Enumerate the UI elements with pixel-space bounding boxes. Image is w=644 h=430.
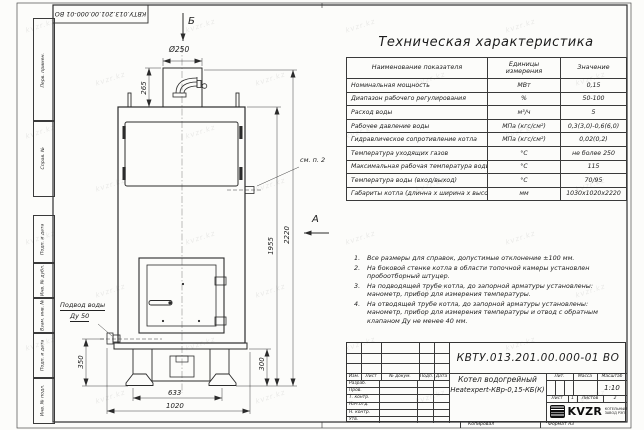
spec-cell: % [488,92,561,106]
note-number: 4. [352,300,367,325]
spec-row: Гидравлическое сопротивление котлаМПа (к… [347,133,627,147]
note-text: На отводящей трубе котла, до запорной ар… [367,300,624,325]
margin-box-inv-dubl: Инв. № дубл. [33,262,55,299]
view-b-label: Б [188,17,195,27]
spec-cell: Номинальная мощность [347,79,488,93]
dim-633: 633 [168,390,181,397]
row-nach-otd: Нач.отд. [349,403,369,407]
spec-cell: 1030х1020х2220 [561,187,627,201]
note-item: 2.На боковой стенке котла в области топо… [352,264,624,281]
spec-cell: 0,02(0,2) [561,133,627,147]
row-prov: Пров. [349,389,362,393]
scale-value: 1:10 [597,384,627,392]
spec-cell: Диапазон рабочего регулирования [347,92,488,106]
base-plate [114,343,247,349]
spec-row: Температура уходящих газов°Сне более 250 [347,146,627,160]
boiler-view [100,46,262,393]
spec-row: Температура воды (вход/выход)°С70/95 [347,174,627,188]
spec-row: Расход водым³/ч5 [347,106,627,120]
spec-row: Габариты котла (длинна х ширина х высота… [347,187,627,201]
top-stamp: КВТУ.013.201.00.000-01 ВО [53,5,148,23]
dim-2220: 2220 [282,220,292,250]
spec-row: Диапазон рабочего регулирования%50-100 [347,92,627,106]
product-name: Котел водогрейный Heatexpert-КВр-0,15-КБ… [449,375,546,395]
lower-door [139,258,224,333]
upper-door-hinges [123,126,243,180]
sheets-value: 2 [603,397,627,401]
row-n-kontr: Н. контр. [349,411,370,415]
drawing-sheet: kvzr.kzkvzr.kzkvzr.kzkvzr.kzkvzr.kzkvzr.… [0,0,644,430]
dim-350: 350 [76,347,86,377]
spec-cell: не более 250 [561,146,627,160]
margin-box-sprav-no: Справ. № [33,120,55,197]
spec-cell: 50-100 [561,92,627,106]
company-logo: KVZR КОТЕЛЬНЫЙ ЗАВОД РЭП [550,405,627,418]
note-text: На подводящей трубе котла, до запорной а… [367,282,624,299]
spec-cell: Максимальная рабочая температура воды [347,160,488,174]
spec-header-row: Наименование показателя Единицы измерени… [347,58,627,79]
format-label: Формат А3 [548,423,574,428]
kvzr-logo-text: KVZR [568,406,603,417]
col-header-name: Наименование показателя [347,58,488,79]
note-number: 3. [352,282,367,299]
kvzr-logo-subtext: КОТЕЛЬНЫЙ ЗАВОД РЭП [605,408,627,416]
row-razrab: Разраб. [349,382,366,386]
spec-cell: МВт [488,79,561,93]
note-ref-label: см. п. 2 [300,157,325,164]
margin-box-vzam-inv: Взам. инв. № [33,297,55,334]
spec-cell: Гидравлическое сопротивление котла [347,133,488,147]
pedestal [126,349,236,386]
row-t-kontr: Т. контр. [349,396,369,400]
boiler-body [118,107,245,343]
grid-header-list: Лист [361,375,381,379]
note-item: 4.На отводящей трубе котла, до запорной … [352,300,624,325]
margin-box-perv-primen: Перв. примен. [33,18,55,122]
copied-by-label: Копировал [468,423,494,428]
lifting-lug-right [236,93,239,107]
grid-header-podp: Подп. [419,375,434,379]
kvzr-logo-icon [550,405,565,418]
lit-label: Лит. [546,375,573,379]
spec-cell: мм [488,187,561,201]
spec-row: Номинальная мощностьМВт0,15 [347,79,627,93]
note-text: На боковой стенке котла в области топочн… [367,264,624,281]
col-header-units: Единицы измерения [488,58,561,79]
dim-1020: 1020 [166,403,184,410]
lifting-lug-left [128,93,131,107]
sheets-label: Листов [577,397,603,401]
dim-300: 300 [257,349,267,379]
note-text: Все размеры для справок, допустимые откл… [367,254,624,262]
doc-number: КВТУ.013.201.00.000-01 ВО [449,343,627,373]
grid-header-data: Дата [434,375,449,379]
scale-label: Масштаб [597,375,627,379]
spec-table: Наименование показателя Единицы измерени… [346,57,627,201]
grid-header-docum: № докум. [381,375,419,379]
notes-list: 1.Все размеры для справок, допустимые от… [352,254,624,327]
water-supply-dn-label: Ду 50 [70,313,89,322]
spec-cell: Расход воды [347,106,488,120]
dim-d250: Ø250 [169,46,189,54]
spec-cell: 70/95 [561,174,627,188]
spec-cell: 5 [561,106,627,120]
water-supply-label: Подвод воды [60,302,105,311]
title-block: КВТУ.013.201.00.000-01 ВО Изм. Лист № до… [346,342,626,422]
margin-box-podp-data-2: Подп. и дата [33,332,55,379]
spec-cell: Температура воды (вход/выход) [347,174,488,188]
spec-cell: м³/ч [488,106,561,120]
col-header-value: Значение [561,58,627,79]
spec-cell: 0,15 [561,79,627,93]
sheet-value: 1 [568,397,577,401]
spec-cell: МПа (кгс/см²) [488,119,561,133]
note-item: 3.На подводящей трубе котла, до запорной… [352,282,624,299]
note-item: 1.Все размеры для справок, допустимые от… [352,254,624,262]
sheet-label: Лист [546,397,568,401]
water-inlet-fitting [100,333,162,344]
lower-door-inner [147,265,216,326]
spec-row: Рабочее давление водыМПа (кгс/см²)0,3(3,… [347,119,627,133]
spec-cell: Температура уходящих газов [347,146,488,160]
note-number: 2. [352,264,367,281]
mass-label: Масса [573,375,597,379]
dim-1955: 1955 [266,231,276,261]
note-number: 1. [352,254,367,262]
spec-cell: Габариты котла (длинна х ширина х высота… [347,187,488,201]
table-title: Техническая характеристика [346,36,626,49]
spec-cell: °С [488,146,561,160]
margin-box-inv-podl: Инв. № подл. [33,377,55,424]
spec-row: Максимальная рабочая температура воды°С1… [347,160,627,174]
spec-cell: °С [488,174,561,188]
view-a-label: А [312,215,319,225]
spec-cell: 115 [561,160,627,174]
margin-box-podp-data-1: Подп. и дата [33,215,55,264]
dim-265: 265 [139,73,149,103]
spec-cell: °С [488,160,561,174]
spec-cell: МПа (кгс/см²) [488,133,561,147]
dimension-lines [82,13,329,414]
row-utv: Утв. [349,418,358,422]
spec-cell: Рабочее давление воды [347,119,488,133]
grid-header-izm: Изм. [347,375,361,379]
upper-door [125,122,238,186]
spec-cell: 0,3(3,0)-0,6(6,0) [561,119,627,133]
chimney [163,68,202,107]
